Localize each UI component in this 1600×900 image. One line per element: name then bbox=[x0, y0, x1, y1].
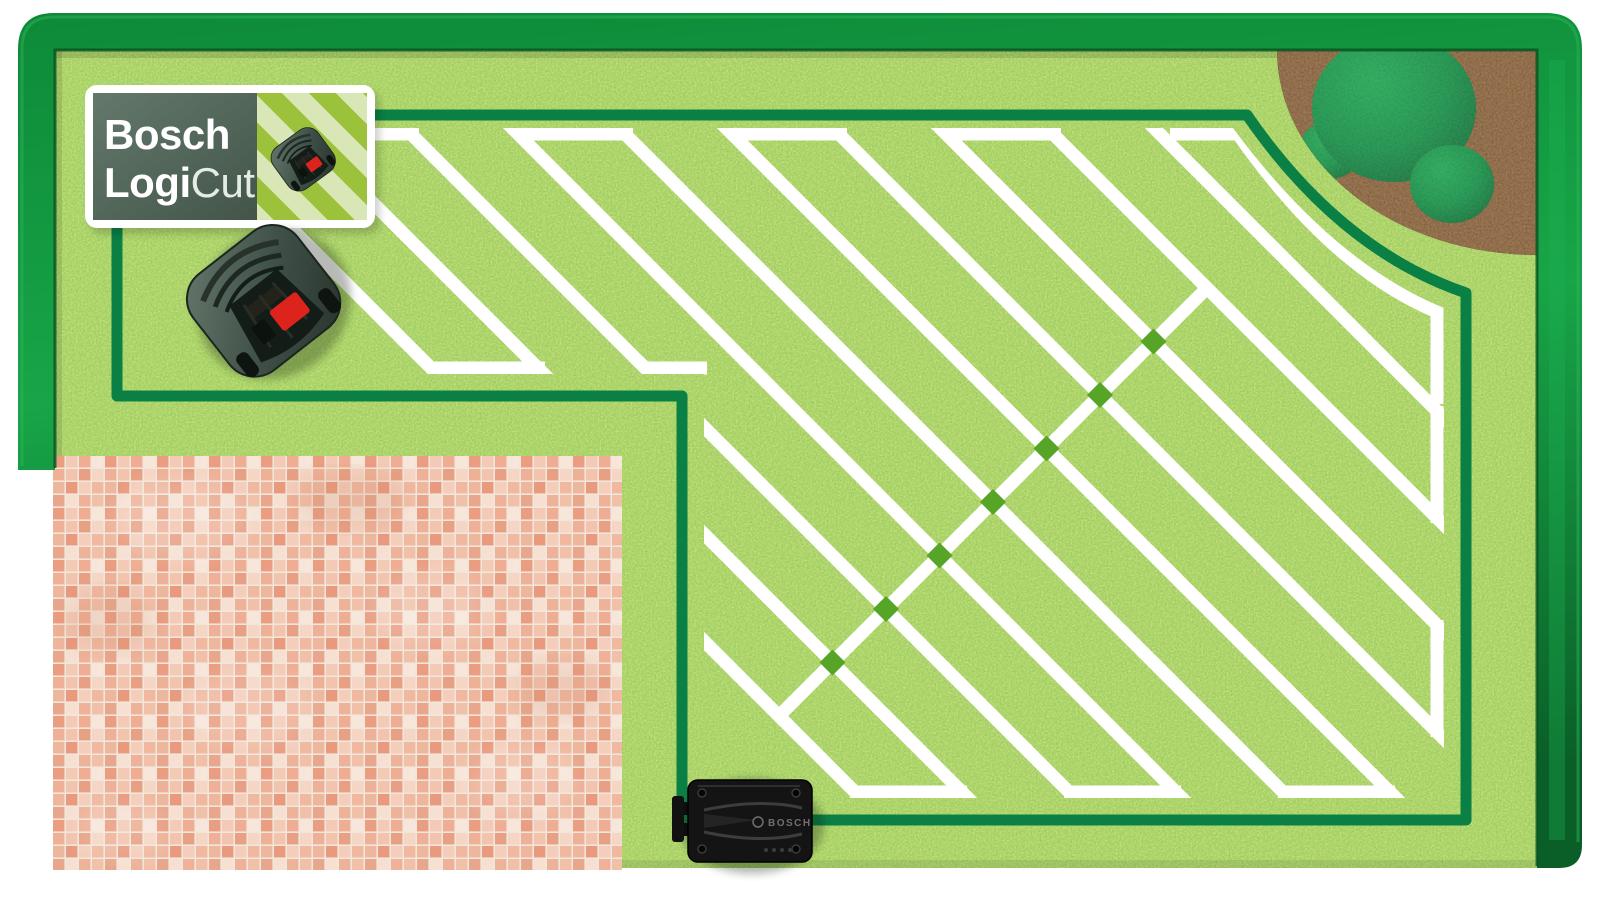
station-screw-hole bbox=[698, 845, 706, 853]
station-screw-hole bbox=[792, 845, 800, 853]
station-brand-label: BOSCH bbox=[768, 818, 812, 829]
logo-badge: Bosch LogiCut bbox=[85, 85, 380, 234]
station-screw-hole bbox=[698, 789, 706, 797]
badge-brand: Bosch bbox=[104, 111, 230, 158]
scene-svg: Bosch LogiCut BOSCH bbox=[0, 0, 1600, 900]
lawn-plan-illustration: Bosch LogiCut BOSCH bbox=[0, 0, 1600, 900]
station-screw-hole bbox=[792, 789, 800, 797]
charging-station: BOSCH bbox=[672, 778, 824, 874]
badge-product: LogiCut bbox=[104, 159, 255, 206]
patio bbox=[53, 456, 622, 870]
